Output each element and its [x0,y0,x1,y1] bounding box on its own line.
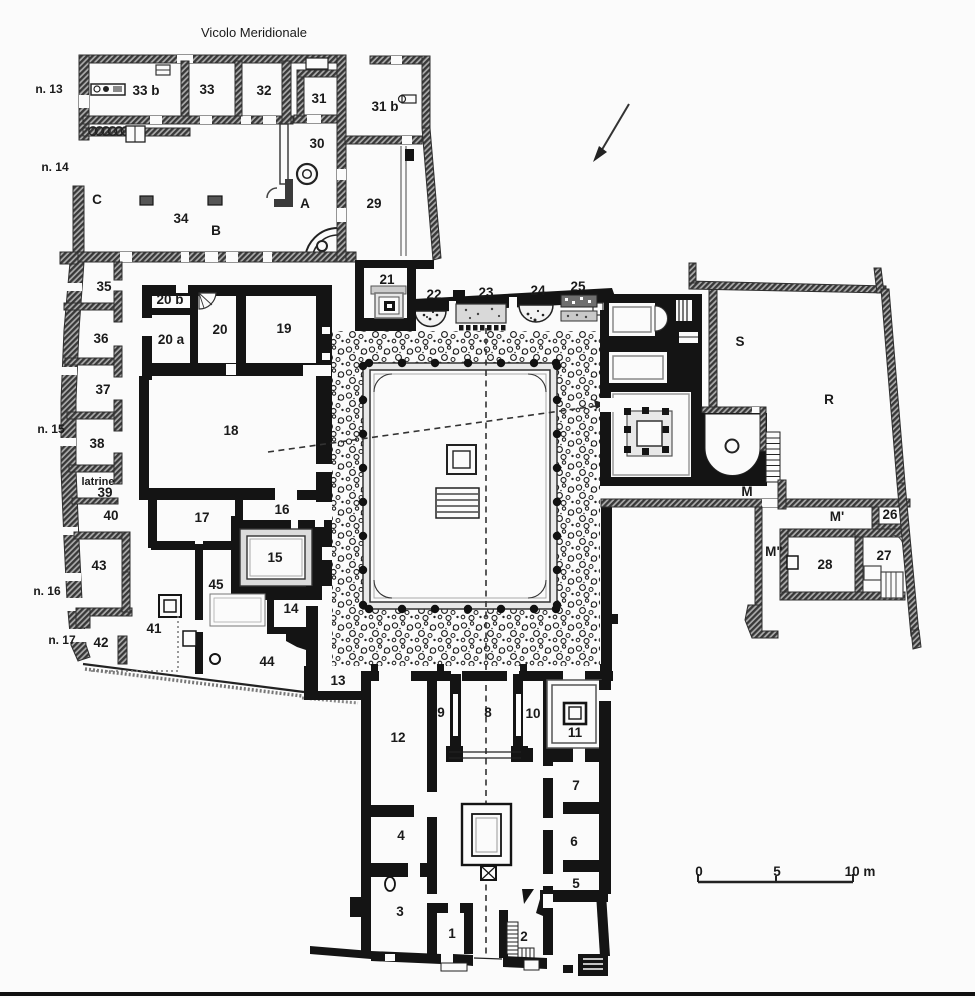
svg-text:37: 37 [95,382,110,397]
svg-text:1: 1 [448,926,456,941]
svg-text:18: 18 [223,423,239,438]
svg-text:M": M" [765,544,783,559]
svg-text:29: 29 [366,196,381,211]
svg-text:43: 43 [91,558,107,573]
svg-text:31 b: 31 b [371,99,398,114]
svg-text:40: 40 [103,508,118,523]
svg-text:n. 15: n. 15 [37,422,65,436]
svg-text:23: 23 [478,285,494,300]
svg-text:n. 14: n. 14 [41,160,69,174]
svg-text:11: 11 [568,725,583,740]
svg-text:10: 10 [525,706,540,721]
svg-text:3: 3 [396,904,404,919]
svg-text:25: 25 [570,279,586,294]
svg-text:45: 45 [208,577,224,592]
svg-text:4: 4 [397,828,405,843]
svg-text:8: 8 [484,705,492,720]
svg-text:36: 36 [93,331,109,346]
svg-text:n. 17: n. 17 [48,633,76,647]
svg-text:15: 15 [267,550,283,565]
svg-text:33 b: 33 b [132,83,159,98]
svg-text:34: 34 [173,211,189,226]
svg-text:17: 17 [194,510,209,525]
svg-text:32: 32 [256,83,271,98]
svg-text:S: S [735,334,744,349]
svg-text:44: 44 [259,654,275,669]
svg-text:26: 26 [882,507,898,522]
svg-text:22: 22 [426,287,441,302]
svg-text:35: 35 [96,279,112,294]
svg-text:12: 12 [390,730,405,745]
svg-text:0: 0 [695,864,703,879]
svg-text:24: 24 [530,283,546,298]
svg-text:13: 13 [330,673,346,688]
svg-text:C: C [92,192,102,207]
svg-text:M: M [741,484,752,499]
svg-text:n. 13: n. 13 [35,82,63,96]
svg-text:16: 16 [274,502,290,517]
svg-text:41: 41 [146,621,162,636]
svg-text:42: 42 [93,635,108,650]
svg-text:20: 20 [212,322,227,337]
svg-text:30: 30 [309,136,324,151]
svg-text:19: 19 [276,321,291,336]
svg-text:2: 2 [520,929,528,944]
svg-text:20 b: 20 b [156,292,183,307]
svg-text:n. 16: n. 16 [33,584,61,598]
svg-text:10 m: 10 m [845,864,876,879]
svg-text:14: 14 [283,601,299,616]
svg-text:M': M' [830,509,844,524]
svg-text:27: 27 [876,548,891,563]
svg-text:5: 5 [773,864,781,879]
svg-text:A: A [300,196,310,211]
svg-text:B: B [211,223,221,238]
svg-text:5: 5 [572,876,580,891]
svg-text:28: 28 [817,557,833,572]
svg-text:20 a: 20 a [158,332,185,347]
svg-text:38: 38 [89,436,105,451]
svg-text:9: 9 [437,705,445,720]
svg-text:7: 7 [572,778,580,793]
svg-text:39: 39 [97,485,112,500]
svg-text:31: 31 [311,91,327,106]
svg-text:21: 21 [379,272,395,287]
svg-text:R: R [824,392,834,407]
svg-text:33: 33 [199,82,215,97]
svg-text:Vicolo Meridionale: Vicolo Meridionale [201,25,307,40]
svg-text:6: 6 [570,834,578,849]
